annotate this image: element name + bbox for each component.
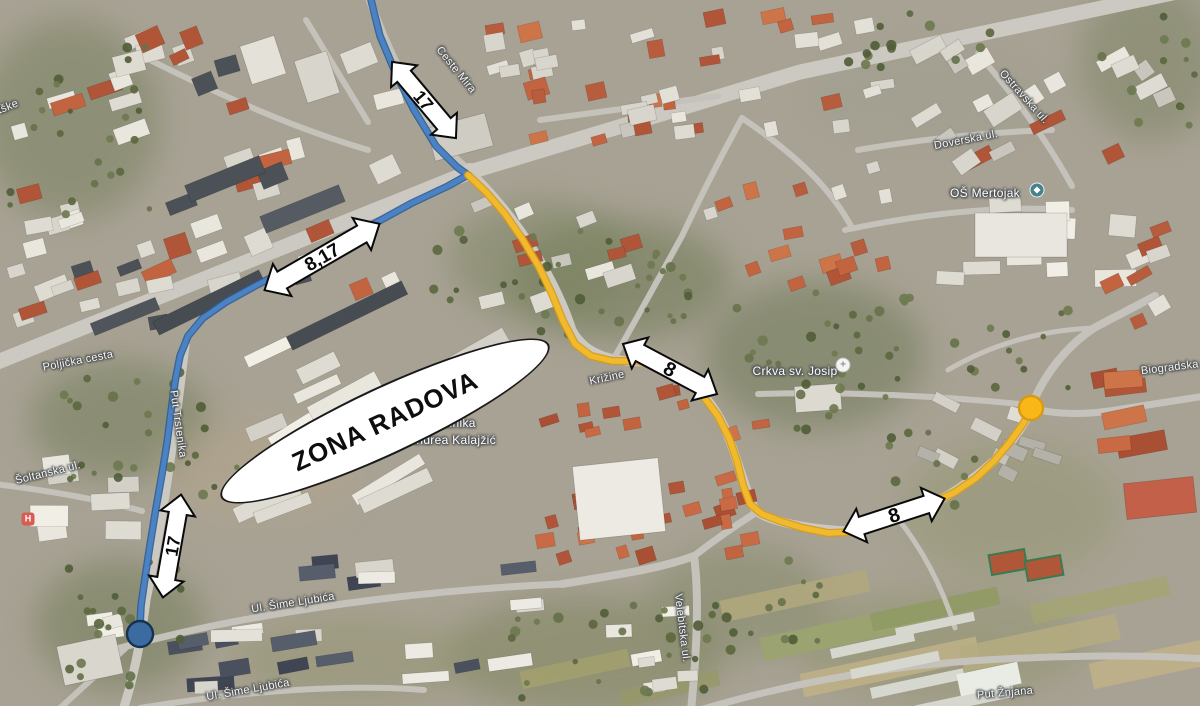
street-label-biogradska-ul: Biogradska ul — [1140, 357, 1200, 378]
street-label-put-njana: Put Žnjana — [976, 685, 1033, 702]
map-labels-layer: tškeCeste MiraPoljička cestaPut Trstenik… — [0, 0, 1200, 706]
street-label-ul-ime-ljubi-a: Ul. Šime Ljubića — [205, 677, 290, 703]
street-label-t-ke: tške — [0, 97, 20, 116]
street-label-oltanska-ul: Šoltanska ul. — [14, 459, 82, 487]
street-label-doverska-ul: Doverska ul. — [933, 128, 999, 152]
street-label-put-trstenika: Put Trstenika — [167, 389, 188, 458]
church-pin-icon[interactable]: + — [836, 358, 851, 373]
street-label-polji-ka-cesta: Poljička cesta — [42, 348, 114, 373]
street-label-kri-ine: Križine — [588, 368, 625, 387]
satellite-map[interactable]: tškeCeste MiraPoljička cestaPut Trstenik… — [0, 0, 1200, 706]
school-icon[interactable] — [1030, 183, 1045, 198]
poi-label-crkva-sv-josip[interactable]: Crkva sv. Josip — [753, 364, 838, 378]
poi-label-o-mertojak[interactable]: OŠ Mertojak — [950, 186, 1020, 200]
street-label-ostravska-ul: Ostravska ul. — [997, 68, 1051, 127]
street-label-ul-ime-ljubi-a: Ul. Šime Ljubića — [250, 590, 335, 615]
street-label-ceste-mira: Ceste Mira — [434, 44, 479, 95]
street-label-velebitska-ul: Velebitska ul. — [672, 593, 692, 663]
hospital-icon[interactable]: H — [22, 513, 35, 526]
